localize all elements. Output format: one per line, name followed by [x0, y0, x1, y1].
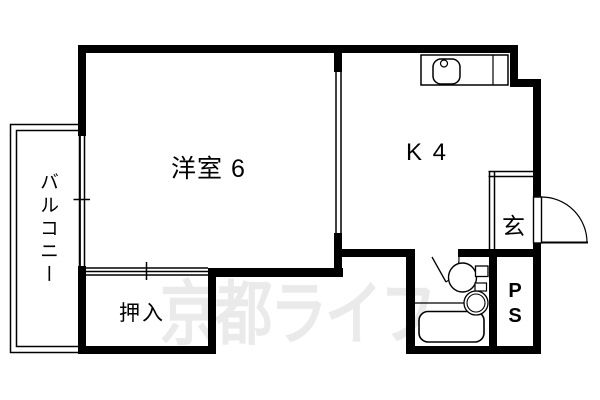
wall-kitchen-bottom-left: [334, 249, 415, 257]
label-entrance: 玄: [502, 207, 525, 241]
label-kitchen: K 4: [406, 139, 448, 167]
floor-plan-drawing: [0, 0, 600, 400]
bathtub-icon: [419, 312, 484, 343]
wall-closet-right: [208, 268, 216, 354]
wall-bottom-right: [406, 346, 541, 354]
wall-top: [78, 45, 518, 53]
wall-room-divider-top: [334, 45, 342, 72]
wall-step-horizontal: [510, 79, 541, 87]
wall-room-bottom: [208, 268, 343, 277]
wall-bottom-left: [78, 346, 216, 354]
entry-door-swing: [534, 197, 589, 243]
wall-left-lower: [78, 266, 86, 354]
kitchen-sink-counter: [421, 55, 508, 85]
floor-plan: 京都ライフ: [0, 0, 600, 400]
wall-bathroom-left: [406, 249, 415, 346]
label-western-room: 洋室 6: [171, 149, 246, 185]
wall-kitchen-bottom-right: [458, 249, 541, 257]
wall-right-upper: [533, 79, 541, 197]
toilet-bowl-icon: [449, 263, 477, 292]
bathroom-door-leaf: [432, 257, 446, 282]
entry-door-arc: [542, 197, 588, 243]
wall-step-vertical: [510, 45, 518, 83]
wall-ps-left: [489, 257, 497, 346]
wall-right-lower: [533, 243, 541, 354]
toilet-paper-holder-icon: [475, 283, 487, 291]
openings: [74, 72, 534, 280]
sink-tap-icon: [441, 60, 448, 67]
toilet-tank-icon: [476, 266, 489, 277]
label-balcony: バルコニー: [34, 172, 61, 312]
wall-left-upper: [78, 45, 86, 136]
label-pipe-space: PS: [503, 280, 526, 340]
washbasin-outer-icon: [464, 291, 488, 315]
bathroom: [415, 257, 488, 342]
label-closet: 押入: [119, 297, 165, 327]
entry-door-leaf: [534, 197, 542, 243]
